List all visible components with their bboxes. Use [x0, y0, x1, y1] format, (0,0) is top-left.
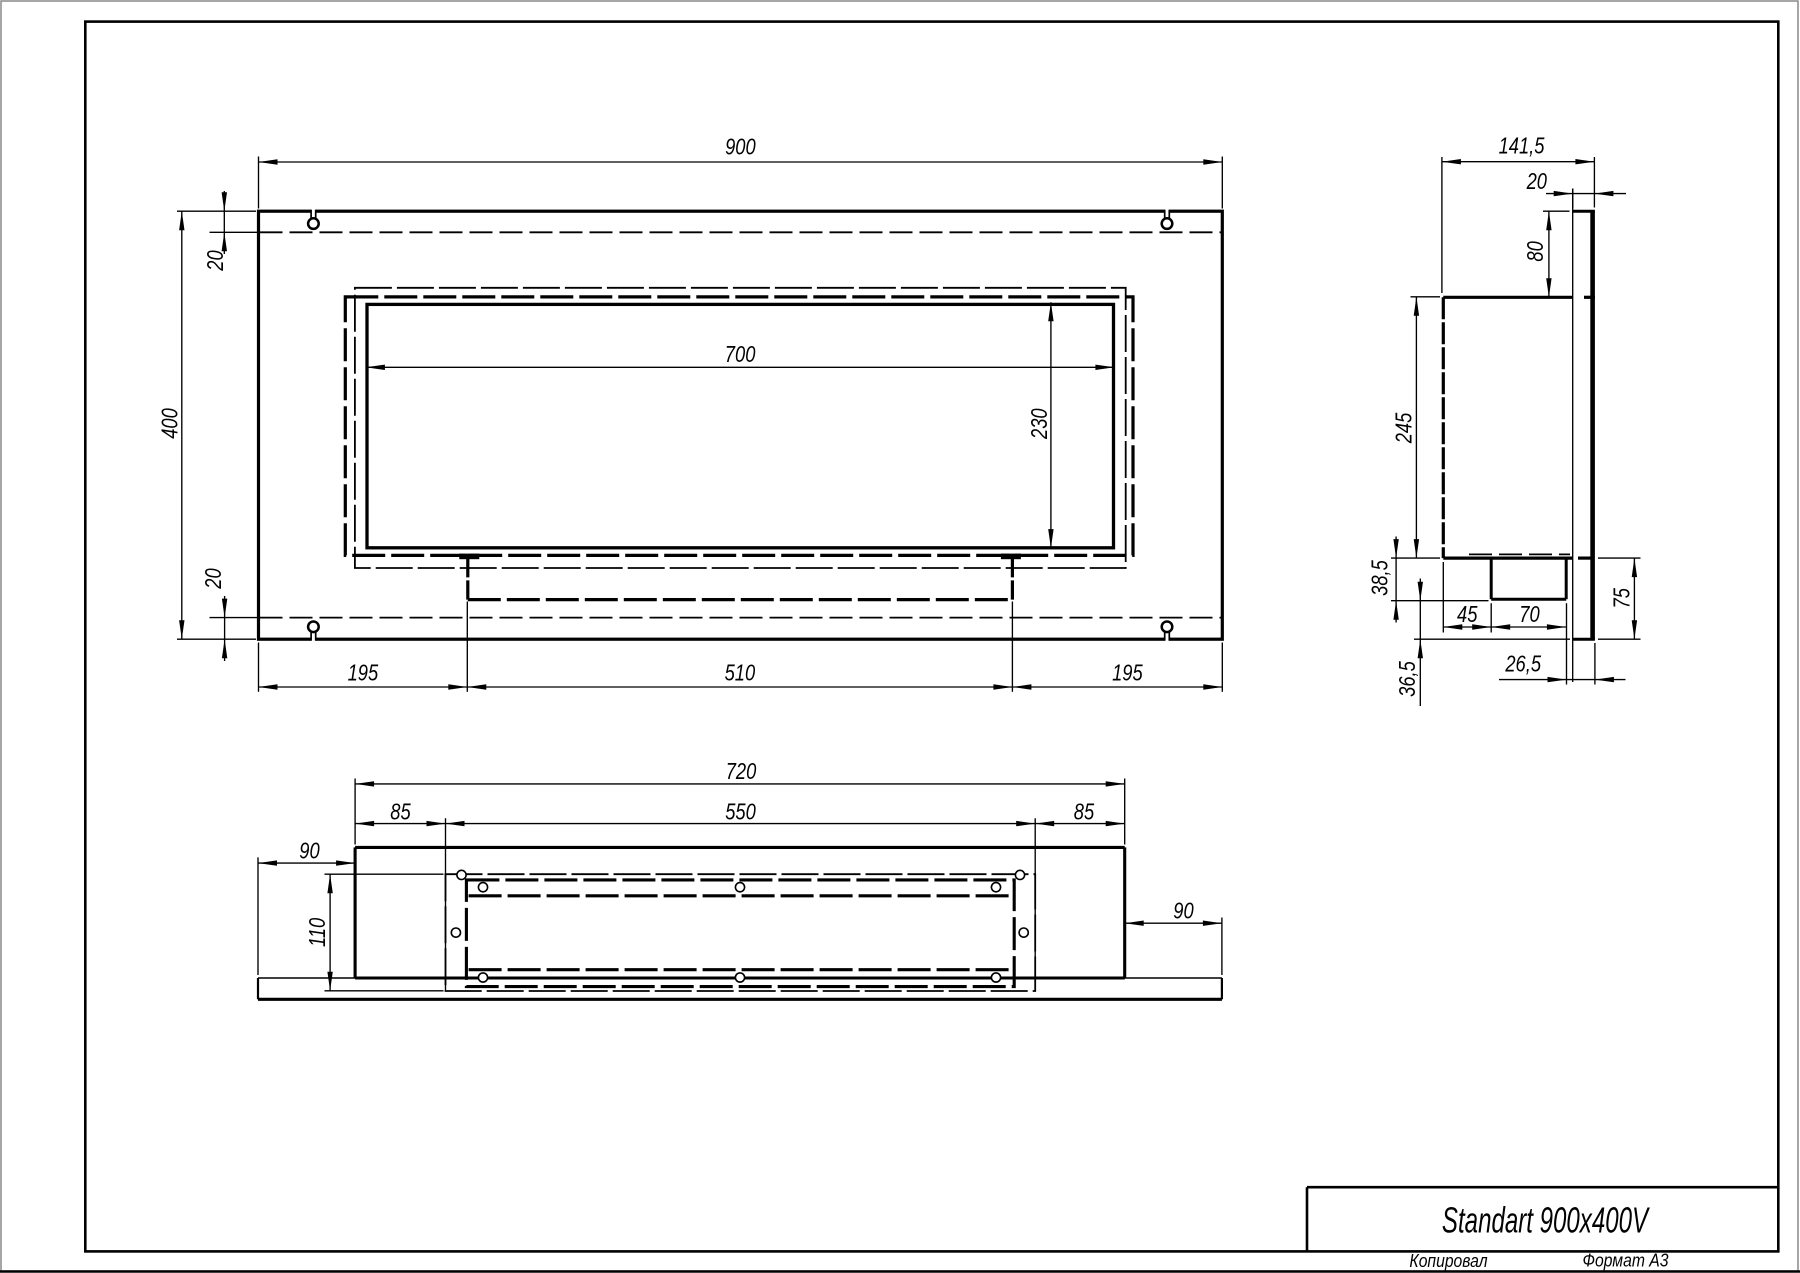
svg-text:85: 85 — [390, 799, 411, 825]
svg-text:195: 195 — [1112, 661, 1143, 687]
svg-text:400: 400 — [157, 408, 183, 439]
svg-text:230: 230 — [1027, 408, 1053, 440]
svg-text:80: 80 — [1523, 241, 1549, 262]
svg-text:141,5: 141,5 — [1499, 134, 1545, 160]
svg-text:75: 75 — [1610, 588, 1636, 609]
svg-text:90: 90 — [299, 838, 320, 864]
svg-text:Формат А3: Формат А3 — [1583, 1249, 1669, 1271]
svg-text:900: 900 — [725, 134, 756, 160]
svg-text:Копировал: Копировал — [1409, 1250, 1487, 1272]
svg-text:550: 550 — [725, 799, 756, 825]
svg-text:110: 110 — [305, 918, 331, 947]
svg-text:20: 20 — [201, 568, 227, 589]
svg-text:245: 245 — [1391, 412, 1417, 444]
svg-text:510: 510 — [725, 661, 756, 687]
svg-text:720: 720 — [726, 759, 757, 785]
svg-text:20: 20 — [203, 250, 229, 271]
svg-text:20: 20 — [1526, 169, 1547, 195]
svg-text:85: 85 — [1074, 799, 1095, 825]
svg-text:45: 45 — [1457, 602, 1478, 628]
svg-text:38,5: 38,5 — [1367, 560, 1393, 596]
svg-text:700: 700 — [725, 342, 756, 368]
svg-text:26,5: 26,5 — [1504, 651, 1541, 677]
svg-text:90: 90 — [1173, 898, 1194, 924]
svg-text:70: 70 — [1519, 602, 1540, 628]
svg-text:195: 195 — [348, 661, 379, 687]
svg-text:Standart 900x400V: Standart 900x400V — [1442, 1199, 1651, 1240]
svg-text:36,5: 36,5 — [1395, 661, 1421, 697]
